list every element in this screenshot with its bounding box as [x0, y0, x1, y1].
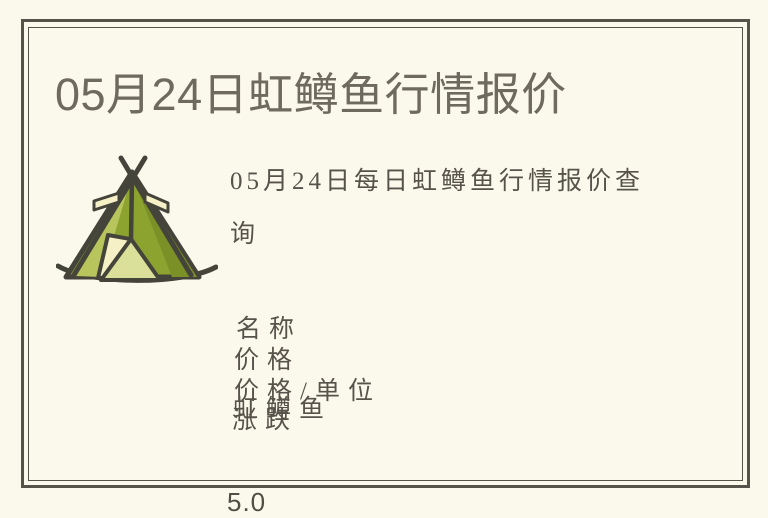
quote-line-price-header: 价格	[234, 347, 300, 375]
tent-icon	[56, 154, 218, 288]
quote-line-change-header: 涨跌	[232, 407, 298, 435]
quote-line-name-header: 名称	[236, 316, 302, 344]
tent-center-pole	[131, 179, 132, 239]
article-title: 05月24日虹鳟鱼行情报价	[55, 58, 567, 123]
price-value: 5.0	[227, 487, 266, 518]
article-description: 05月24日每日虹鳟鱼行情报价查询	[230, 155, 660, 261]
